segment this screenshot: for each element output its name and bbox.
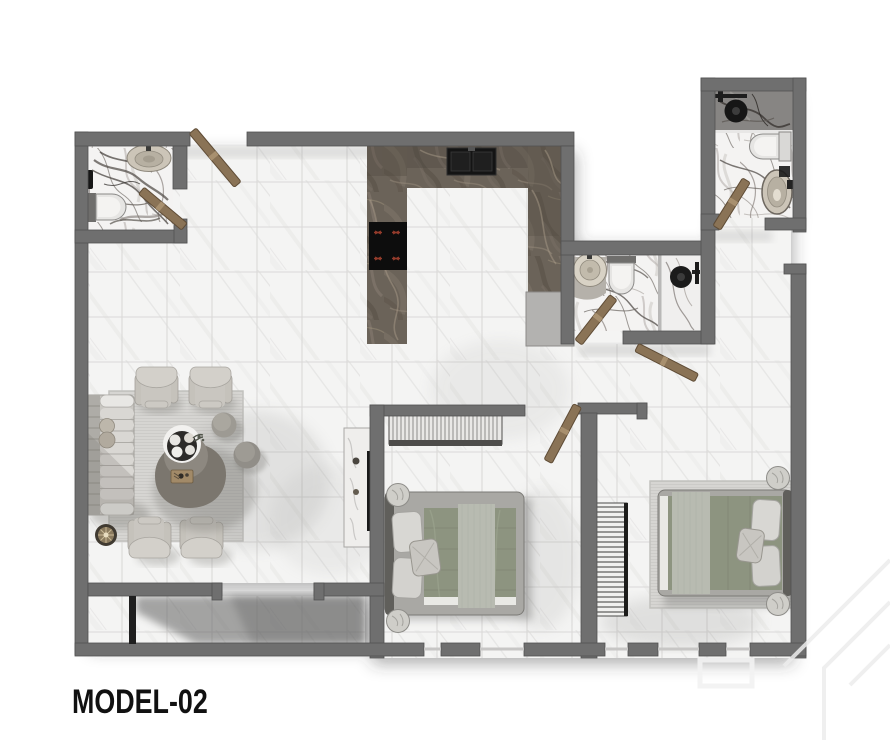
svg-text:MODEL-02: MODEL-02 (72, 683, 208, 721)
